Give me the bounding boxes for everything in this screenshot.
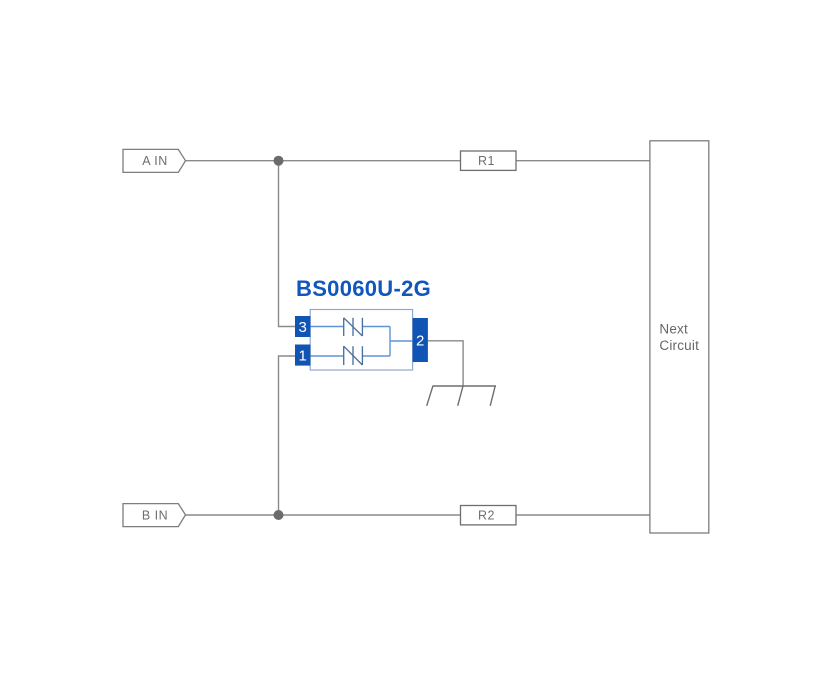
svg-text:3: 3 [299,319,307,336]
svg-text:1: 1 [299,348,307,365]
svg-text:Next: Next [659,322,688,337]
svg-text:Circuit: Circuit [659,338,699,353]
svg-text:A IN: A IN [142,154,168,168]
svg-text:2: 2 [416,333,424,350]
svg-text:BS0060U-2G: BS0060U-2G [296,276,431,301]
svg-text:B IN: B IN [142,508,168,522]
svg-text:R1: R1 [478,154,495,168]
svg-text:R2: R2 [478,509,495,523]
